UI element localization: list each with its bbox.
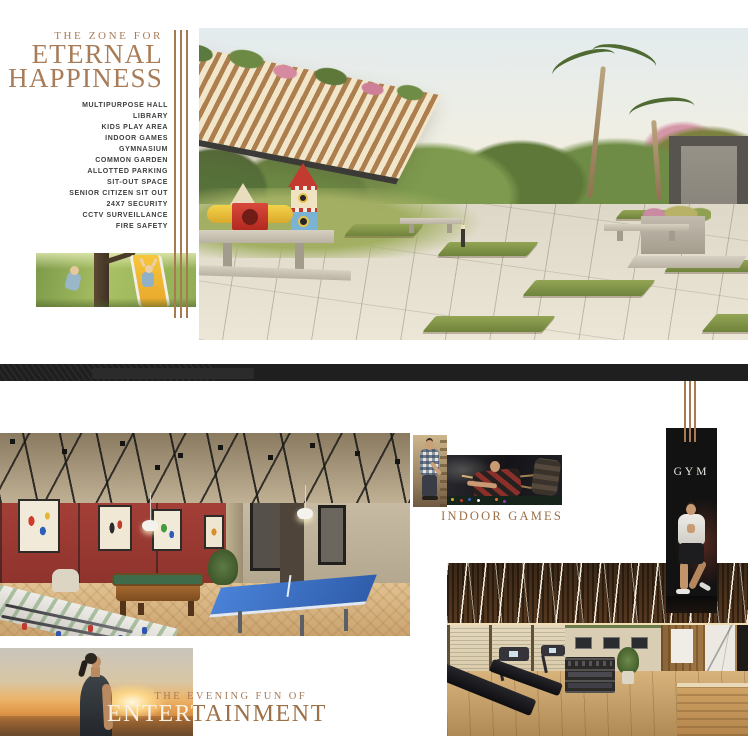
- amenity-item: KIDS PLAY AREA: [69, 122, 168, 133]
- amenities-list: MULTIPURPOSE HALL LIBRARY KIDS PLAY AREA…: [69, 100, 168, 232]
- indoor-plant: [208, 549, 238, 585]
- window: [318, 505, 346, 565]
- amenity-item: CCTV SURVEILLANCE: [69, 210, 168, 221]
- decorative-vertical-lines: [684, 381, 696, 442]
- entertainment-kicker: THE EVENING FUN OF: [154, 691, 307, 702]
- play-cube: [232, 203, 268, 230]
- indoor-games-room-photo: [0, 433, 410, 636]
- foosball-players: [22, 623, 27, 630]
- amenity-item: ALLOTTED PARKING: [69, 166, 168, 177]
- reception-desk: [677, 683, 748, 736]
- bollard-light: [461, 225, 465, 247]
- billiards-player-photo: [413, 435, 447, 507]
- zone-heading: THE ZONE FOR ETERNAL HAPPINESS: [8, 30, 163, 90]
- grass-strip: [422, 316, 555, 332]
- play-cone: [230, 183, 256, 205]
- amenity-item: LIBRARY: [69, 111, 168, 122]
- page-fold-band: [0, 364, 748, 381]
- gym-banner: GYM: [666, 428, 717, 613]
- garden-bench: [627, 256, 746, 268]
- entertainment-title-overlay: ENTERTAINMENT: [107, 701, 193, 728]
- grass-strip: [437, 242, 539, 256]
- grass-strip: [522, 280, 655, 296]
- brochure-page: THE ZONE FOR ETERNAL HAPPINESS MULTIPURP…: [0, 0, 748, 736]
- play-tower-roof: [288, 163, 318, 187]
- pool-table: [112, 573, 204, 586]
- wall-art: [737, 623, 748, 675]
- amenity-item: INDOOR GAMES: [69, 133, 168, 144]
- garden-bench: [604, 224, 689, 231]
- amenity-item: FIRE SAFETY: [69, 221, 168, 232]
- pendant-lamp: [142, 520, 158, 531]
- amenity-item: MULTIPURPOSE HALL: [69, 100, 168, 111]
- wall-art: [98, 505, 132, 551]
- concrete-table: [199, 230, 334, 243]
- amenity-item: COMMON GARDEN: [69, 155, 168, 166]
- player-figure: [531, 457, 562, 496]
- kids-play-photo: [36, 253, 196, 307]
- child-figure: [142, 272, 154, 287]
- wall-art: [152, 509, 182, 551]
- gym-label: GYM: [666, 466, 717, 478]
- gym-mirror: [631, 637, 648, 649]
- amenity-item: 24X7 SECURITY: [69, 199, 168, 210]
- gym-mirror: [603, 637, 620, 649]
- wall-art: [204, 515, 224, 549]
- beamed-ceiling: [0, 433, 410, 503]
- ceiling-spotlights: [10, 439, 15, 444]
- indoor-games-label: INDOOR GAMES: [441, 509, 563, 524]
- wall-art: [18, 499, 60, 553]
- wall-poster: [671, 629, 693, 663]
- zone-title-line2: HAPPINESS: [8, 66, 163, 90]
- amenity-item: SENIOR CITIZEN SIT OUT: [69, 188, 168, 199]
- amenity-item: SIT-OUT SPACE: [69, 177, 168, 188]
- garden-courtyard-photo: [199, 28, 748, 340]
- billiard-balls: [451, 498, 454, 501]
- decorative-vertical-lines: [174, 30, 188, 318]
- armchair: [52, 569, 79, 592]
- pendant-lamp: [297, 508, 313, 519]
- gym-mirror: [575, 637, 592, 649]
- amenity-item: GYMNASIUM: [69, 144, 168, 155]
- indoor-plant: [617, 647, 639, 674]
- play-tower-block: [291, 186, 317, 208]
- billiards-photo: [433, 455, 562, 505]
